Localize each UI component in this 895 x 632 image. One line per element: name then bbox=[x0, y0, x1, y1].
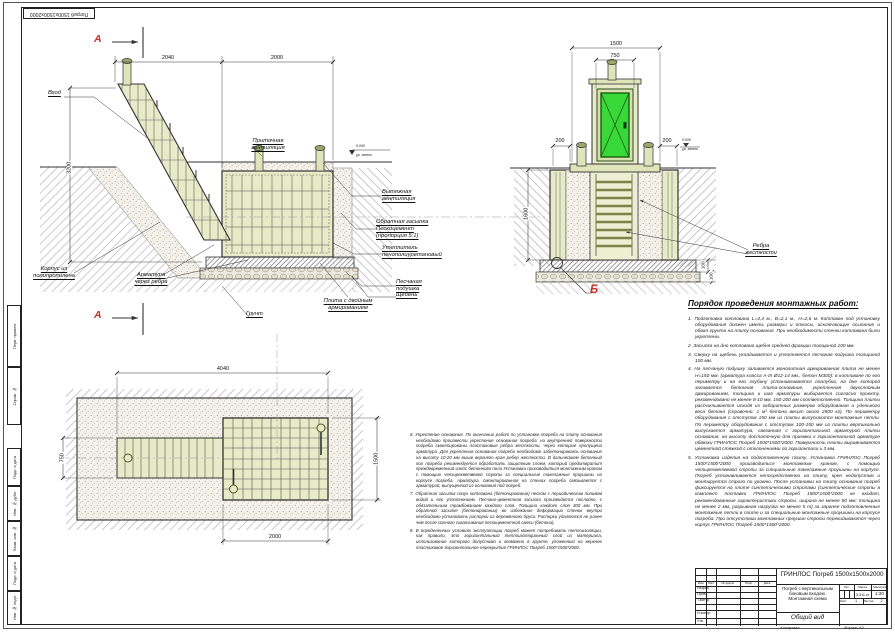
tb-col-data: Дата bbox=[758, 582, 776, 585]
dim-a-3200: 3200 bbox=[67, 153, 73, 183]
drawing-sheet: Погреб 1500х1500х2000 Перв. примен. Спра… bbox=[0, 0, 895, 632]
dim-plan-750: 750 bbox=[60, 443, 66, 473]
dim-b-1500: 1500 bbox=[596, 42, 636, 48]
label-entry: Вход bbox=[48, 90, 70, 97]
dim-a-2040: 2040 bbox=[148, 56, 188, 62]
dim-b-200-left: 200 bbox=[544, 139, 576, 145]
section-a-linework bbox=[40, 58, 545, 292]
edge-cell-podp-data-2: Подп. и дата bbox=[7, 556, 21, 591]
work-order-item: 3. Сверху на щебень укладывается и уплот… bbox=[688, 353, 880, 365]
corner-stamp: Погреб 1500х1500х2000 bbox=[23, 8, 95, 19]
dim-b-1600: 1600 bbox=[524, 198, 530, 230]
label-backfill: Обратная засыпка Пескоцемент (пропорция … bbox=[376, 219, 430, 239]
work-order-item: 4. На песчаную подушку заливается моноли… bbox=[688, 367, 880, 453]
note-item: 7. Обратная засыпка пазух котлована (бет… bbox=[410, 491, 602, 525]
tb-massa-value: 3,311 кг bbox=[855, 593, 871, 597]
dim-b-100-slab: 100 bbox=[702, 251, 707, 279]
title-block: Изм. Лист № докум. Подп. Дата Разраб. Пр… bbox=[695, 568, 887, 625]
edge-cell-perv-primen: Перв. примен. bbox=[7, 305, 21, 367]
label-ribs: Ребра жесткости bbox=[742, 243, 780, 257]
tb-row-razrab: Разраб. bbox=[697, 587, 710, 591]
work-order-title: Порядок проведения монтажных работ: bbox=[688, 299, 886, 308]
edge-cell-podp-data-1: Подп. и дата bbox=[7, 448, 21, 486]
tb-lit-label: Лит. bbox=[840, 586, 854, 589]
tb-list-value: 1 bbox=[851, 599, 861, 603]
tb-scale-label: Масштаб bbox=[872, 586, 888, 589]
work-order-item: 2. Засыпка на дно котлована щебня средне… bbox=[688, 344, 880, 350]
label-slab: Плита с двойным армированием bbox=[320, 298, 376, 312]
dim-plan-2000: 2000 bbox=[254, 535, 296, 541]
label-soil: Грунт bbox=[246, 311, 270, 318]
tb-scale-value: 1:20 bbox=[872, 592, 888, 597]
tb-list-label: Лист bbox=[840, 600, 851, 603]
tb-doc-name: Погреб с вертикальным боковым входом. Мо… bbox=[777, 587, 838, 601]
level-mark-b: 0.000 ур. земли bbox=[682, 134, 716, 156]
edge-cell-sprav: Справ. № bbox=[7, 367, 21, 425]
tb-view-name: Общий вид bbox=[777, 615, 838, 622]
section-marker-b: Б bbox=[590, 285, 598, 297]
tb-listov-value: 2 bbox=[877, 599, 886, 603]
tb-listov-label: Листов bbox=[864, 600, 878, 603]
plan-linework bbox=[62, 334, 363, 530]
dim-plan-1500: 1500 bbox=[374, 444, 380, 474]
tb-col-doc: № докум. bbox=[716, 582, 740, 585]
tb-row-nkontr: Н.контр. bbox=[697, 612, 711, 616]
label-body: Корпус из полипропилена bbox=[30, 266, 78, 280]
footer-copy: Копировал bbox=[750, 626, 830, 630]
section-marker-a-bottom: А bbox=[94, 310, 102, 321]
edge-cell-inv-podl: Инв. № подл. bbox=[7, 591, 21, 625]
tb-row-utv: Утв. bbox=[697, 620, 704, 624]
tb-col-list: Лист bbox=[706, 582, 716, 585]
dim-b-100-bed: 100 bbox=[710, 262, 715, 290]
work-order-item: 1. Подготовка котлована L=4,4 м., В=2,1 … bbox=[688, 317, 880, 342]
label-supply-vent: Приточная вентиляция bbox=[246, 138, 290, 152]
dim-b-200-right: 200 bbox=[651, 139, 683, 145]
tb-col-podp: Подп. bbox=[740, 582, 758, 585]
note-item: 8. В определенных условиях эксплуатации … bbox=[410, 528, 602, 551]
label-exhaust-vent: Вытяжная вентиляция bbox=[382, 189, 424, 203]
corner-stamp-text: Погреб 1500х1500х2000 bbox=[24, 9, 94, 18]
tb-row-tkontr: Т.контр. bbox=[697, 599, 710, 603]
level-mark-a: 0.000 ур. земли bbox=[356, 140, 390, 162]
label-sand-bed: Песчаная подушка bbox=[396, 279, 428, 293]
label-gravel: Щебень bbox=[396, 292, 424, 299]
edge-cell-vzam-inv: Взам. инв. № bbox=[7, 521, 21, 556]
section-b-linework bbox=[510, 59, 716, 294]
tb-massa-label: Масса bbox=[855, 586, 871, 589]
dim-plan-4040: 4040 bbox=[202, 367, 244, 373]
notes-list: 6. Укрепление основания. По окончании ра… bbox=[410, 432, 602, 552]
dim-a-2000: 2000 bbox=[257, 56, 297, 62]
edge-cell-inv-dubl: Инв. № дубл. bbox=[7, 486, 21, 521]
footer-format: Формат A3 bbox=[824, 626, 884, 630]
note-item: 6. Укрепление основания. По окончании ра… bbox=[410, 432, 602, 489]
label-insulation: Утеплитель пенополиуретановый bbox=[382, 245, 440, 259]
tb-doc-title: ГРИНЛОС Погреб 1500х1500х2000 bbox=[777, 572, 887, 579]
section-marker-a-top: А bbox=[94, 34, 102, 45]
tb-row-prov: Пров. bbox=[697, 593, 707, 597]
dim-b-750: 750 bbox=[595, 54, 635, 60]
label-rebar: Арматура через ребра bbox=[132, 272, 170, 286]
work-order-list: 1. Подготовка котлована L=4,4 м., В=2,1 … bbox=[688, 317, 880, 532]
tb-col-izm: Изм. bbox=[696, 582, 706, 585]
work-order-item: 5. Установка изделия на подготовленную п… bbox=[688, 456, 880, 530]
